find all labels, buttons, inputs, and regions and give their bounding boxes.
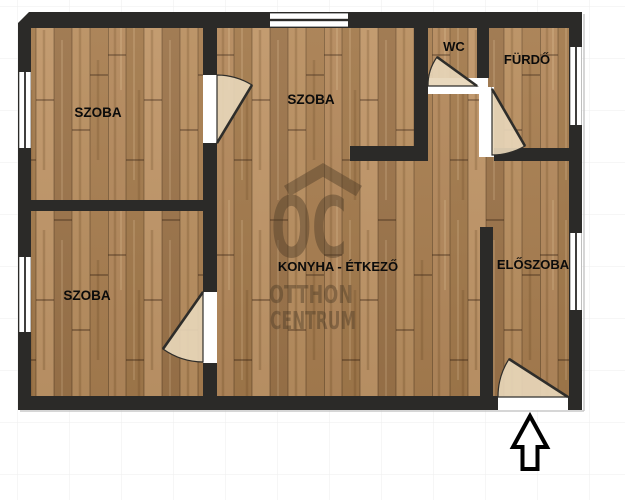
room-label-furdo: FÜRDŐ [504, 52, 550, 67]
door-opening-entrance [498, 396, 568, 410]
room-label-szoba-top-middle: SZOBA [287, 92, 335, 107]
floor-plan-page: OC OTTHON CENTRUM [0, 0, 625, 500]
room-label-eloszoba: ELŐSZOBA [497, 257, 570, 272]
door-opening-szoba-top [203, 75, 217, 143]
floor-plan-canvas: OC OTTHON CENTRUM [0, 0, 625, 500]
wall-between-left-rooms [18, 200, 217, 211]
wall-bottom [18, 396, 582, 410]
wall-szoba-wc [414, 25, 428, 148]
watermark: OC OTTHON CENTRUM [269, 170, 359, 335]
room-label-szoba-bottom-left: SZOBA [63, 288, 111, 303]
door-opening-szoba-bottom [203, 292, 217, 363]
watermark-line2: CENTRUM [270, 306, 356, 335]
room-label-wc: WC [443, 39, 465, 54]
wall-kitchen-nook [350, 146, 428, 161]
room-label-konyha-etkezo: KONYHA - ÉTKEZŐ [278, 259, 398, 274]
room-label-szoba-top-left: SZOBA [74, 105, 122, 120]
watermark-line1: OTTHON [269, 280, 353, 309]
wall-konyha-eloszoba [480, 227, 493, 396]
wall-wc-furdo [477, 25, 489, 78]
